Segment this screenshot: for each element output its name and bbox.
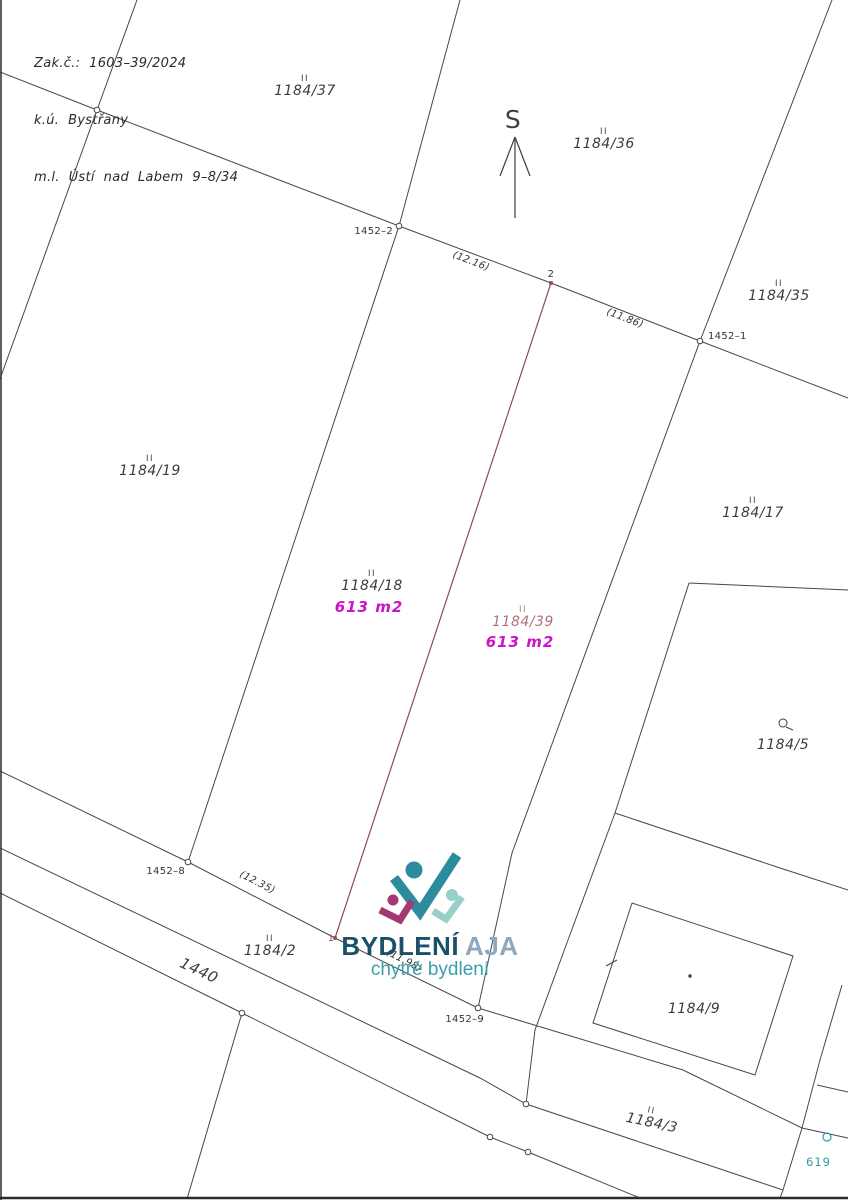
survey-point-label: 1452–2 [354,226,393,237]
map-line-building-1184-9-outline [593,903,793,1075]
survey-point-label: 1452–9 [445,1014,484,1025]
parcel5-landuse-symbol [779,719,787,727]
survey-point-label: 2 [548,269,555,280]
map-line-parcel5-top-edge [689,583,848,590]
dimension-label: (12.35) [237,869,276,896]
land-use-marker: II [368,569,376,579]
map-line-parcel5-west-edge [615,583,689,813]
survey-point-marker [487,1134,493,1140]
map-sheet-corner-point [823,1133,831,1141]
map-line-parcel2-north-boundary [0,771,848,1138]
header-map-sheet: m.l. Ústí nad Labem 9–8/34 [34,168,238,187]
parcel-label1184-39: 1184/39 [492,614,554,630]
land-use-marker: II [146,454,154,464]
survey-point-marker [239,1010,245,1016]
drawing-header: Zak.č.: 1603–39/2024 k.ú. Bystřany m.l. … [34,16,238,225]
land-use-marker: II [266,934,274,944]
dimension-label: (11.98) [384,947,423,974]
land-use-marker: II [519,605,527,615]
map-line-strip-east-boundary [478,341,700,1008]
survey-point-label: 1 [328,934,334,944]
header-cadastral-area: k.ú. Bystřany [34,111,238,130]
parcel-label1184-37: 1184/37 [274,83,336,99]
parcel-label1184-9: 1184/9 [668,1001,720,1017]
land-use-marker: II [749,496,757,506]
map-line-strip-west-boundary [188,226,399,862]
land-use-marker: II [600,127,608,137]
parcel-label1184-19: 1184/19 [119,463,181,479]
map-line-north-arrow-barb-left [500,137,515,176]
survey-point-marker [475,1005,481,1011]
parcel-label1184-36: 1184/36 [573,136,635,152]
header-order-number: Zak.č.: 1603–39/2024 [34,54,238,73]
parcel-label1440: 1440 [177,954,221,987]
map-line-north-arrow-barb-right [515,137,530,176]
parcel-label1184-35: 1184/35 [748,288,810,304]
map-line-parcel5-symbol-tail [786,727,793,730]
north-arrow-label: S [505,105,521,134]
area-label: 613 m2 [335,598,404,616]
survey-point-marker [525,1149,531,1155]
building-center-dot [688,974,691,977]
survey-point-marker [523,1101,529,1107]
survey-point-marker [396,223,402,229]
land-use-marker: II [301,74,309,84]
map-line-parcel5-south-edge [615,813,848,890]
new-boundary-endpoint [549,281,553,285]
survey-point-marker [697,338,703,344]
dimension-label: (11.86) [605,307,645,331]
map-line-below-road-steep [187,1013,242,1199]
map-line-road-north-edge [0,848,783,1190]
parcel-label1184-18: 1184/18 [341,578,403,594]
area-label: 613 m2 [486,633,555,651]
survey-point-marker [185,859,191,865]
parcel-label1184-2: 1184/2 [244,943,296,959]
map-line-mid-steep-boundary [526,813,615,1104]
map-line-road-south-edge [0,893,640,1198]
land-use-marker: II [775,279,783,289]
parcel-label1184-17: 1184/17 [722,505,784,521]
survey-point-label: 1452–1 [708,331,747,342]
survey-point-label: 1452–8 [146,866,185,877]
parcel-label1184-5: 1184/5 [757,737,809,753]
map-line-divider-1184-37-36 [399,0,460,226]
map-line-right-branch-line [817,1085,848,1092]
map-sheet-ref-619: 619 [806,1155,846,1169]
cadastral-map-page: 1184/37II1184/36II1184/35II1184/19II1184… [0,0,848,1200]
